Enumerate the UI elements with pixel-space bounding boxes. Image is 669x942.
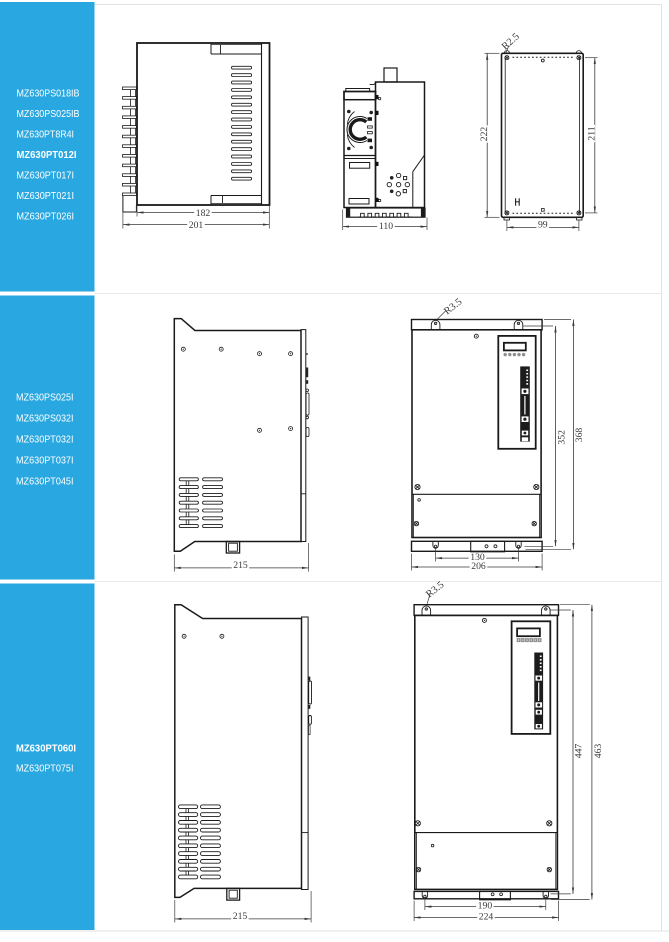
svg-text:215: 215	[233, 911, 248, 922]
svg-text:MZ630PS018IB: MZ630PS018IB	[17, 89, 80, 100]
svg-text:222: 222	[479, 127, 490, 142]
svg-text:MZ630PT012I: MZ630PT012I	[17, 150, 77, 161]
svg-text:MZ630PT8R4I: MZ630PT8R4I	[17, 130, 75, 141]
svg-text:182: 182	[196, 208, 211, 219]
svg-text:MZ630PT021I: MZ630PT021I	[17, 191, 75, 202]
svg-text:224: 224	[479, 912, 494, 923]
svg-text:MZ630PT045I: MZ630PT045I	[16, 477, 74, 488]
svg-text:352: 352	[556, 430, 567, 445]
svg-text:MZ630PT060I: MZ630PT060I	[16, 744, 76, 755]
svg-text:MZ630PT026I: MZ630PT026I	[17, 212, 75, 223]
svg-text:MZ630PS032I: MZ630PS032I	[16, 414, 74, 425]
svg-text:211: 211	[586, 126, 597, 140]
svg-text:110: 110	[379, 221, 393, 232]
svg-text:MZ630PT075I: MZ630PT075I	[16, 764, 74, 775]
svg-text:206: 206	[471, 561, 486, 572]
svg-text:MZ630PS025I: MZ630PS025I	[16, 393, 74, 404]
svg-text:MZ630PS025IB: MZ630PS025IB	[17, 109, 80, 120]
svg-text:215: 215	[233, 560, 248, 571]
svg-text:99: 99	[538, 220, 548, 231]
svg-text:201: 201	[189, 220, 204, 231]
svg-text:463: 463	[593, 744, 604, 759]
svg-text:MZ630PT032I: MZ630PT032I	[16, 435, 74, 446]
svg-text:190: 190	[478, 901, 493, 912]
svg-text:368: 368	[574, 428, 585, 443]
svg-text:447: 447	[574, 744, 585, 759]
svg-text:MZ630PT017I: MZ630PT017I	[17, 171, 75, 182]
svg-text:MZ630PT037I: MZ630PT037I	[16, 456, 74, 467]
